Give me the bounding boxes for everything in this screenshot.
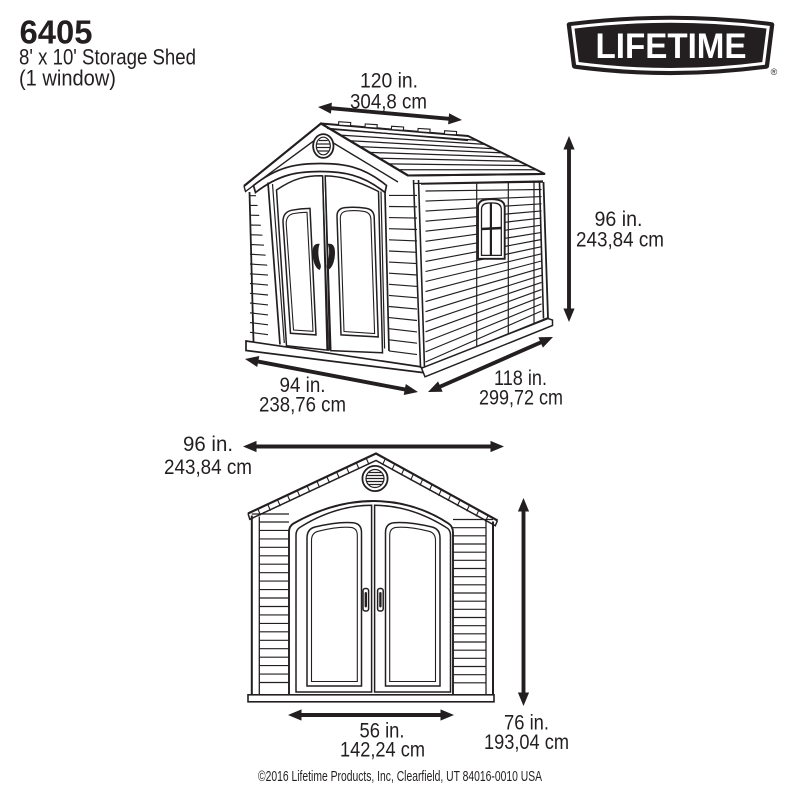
svg-text:142,24 cm: 142,24 cm (340, 739, 425, 762)
svg-text:238,76 cm: 238,76 cm (259, 394, 346, 417)
svg-text:120 in.: 120 in. (360, 70, 418, 93)
svg-text:243,84 cm: 243,84 cm (164, 456, 252, 479)
svg-text:(1 window): (1 window) (19, 66, 116, 91)
svg-text:LIFETIME: LIFETIME (596, 27, 747, 66)
svg-text:96 in.: 96 in. (183, 433, 233, 456)
svg-text:299,72 cm: 299,72 cm (479, 387, 563, 410)
svg-text:®: ® (771, 67, 778, 77)
svg-text:243,84 cm: 243,84 cm (576, 229, 664, 252)
svg-text:193,04 cm: 193,04 cm (484, 731, 569, 754)
svg-text:©2016 Lifetime Products, Inc,: ©2016 Lifetime Products, Inc, Clearfield… (258, 769, 542, 785)
svg-text:304,8 cm: 304,8 cm (350, 91, 427, 114)
